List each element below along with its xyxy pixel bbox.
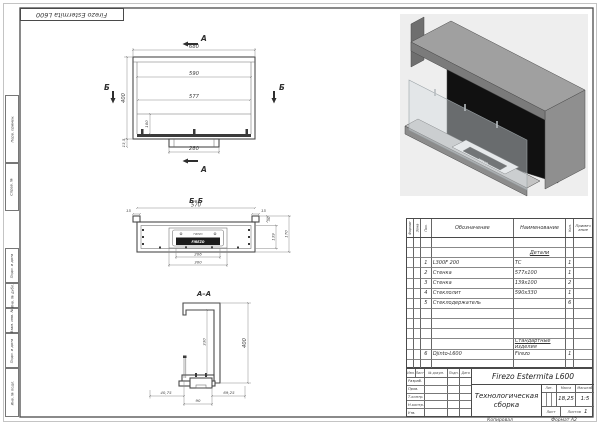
table-row-part-2: 2Стенка577x1001 xyxy=(407,268,592,278)
margin-label: Инв. № подл. xyxy=(10,380,14,405)
doc-type: Технологическая сборка xyxy=(472,385,542,416)
table-row-part-4: 4Стеклолит590x3301 xyxy=(407,289,592,299)
table-row-group-standard: Стандартные изделия xyxy=(407,339,592,349)
format-label: Формат А2 xyxy=(535,418,593,423)
section-mark-b-left: Б xyxy=(104,83,116,104)
col-zone: Зона xyxy=(415,224,419,233)
sheets-value: 1 xyxy=(584,409,588,415)
dim-bb-flange-left: 15 xyxy=(126,208,131,213)
table-row-part-3: 3Стенка139x1002 xyxy=(407,279,592,289)
svg-text:А: А xyxy=(200,165,207,174)
corner-stamp-text: Firezo Estermita L600 xyxy=(36,11,107,19)
margin-cell-perv-primen: Перв. примен. xyxy=(5,95,19,163)
dim-aa-height: 400 xyxy=(242,337,248,348)
burner-brand-small: FIREZO xyxy=(193,232,202,236)
dim-base-height: 13,5 xyxy=(121,138,126,147)
dim-bb-top: 30 xyxy=(266,216,271,221)
group-standard-label: Стандартные изделия xyxy=(514,339,566,349)
dim-bb-inner-depth: 139 xyxy=(271,233,276,241)
col-format: Формат xyxy=(408,221,412,235)
margin-cell-sprav: Справ. № xyxy=(5,163,19,211)
col-note: Примечание xyxy=(574,219,592,237)
table-row-part-5: 5Стеклодержатель6 xyxy=(407,299,592,309)
col-lit: Лит. xyxy=(542,385,557,392)
margin-cell-vzam-inv: Взам. инв. № xyxy=(5,308,19,333)
dim-glass-width: 577 xyxy=(189,94,200,100)
dim-bb-flange-right: 15 xyxy=(261,208,266,213)
dim-aa-burner: 90 xyxy=(196,398,201,403)
margin-label: Перв. примен. xyxy=(10,116,14,143)
svg-text:А: А xyxy=(200,34,207,43)
margin-label: Подп. и дата xyxy=(10,253,14,277)
col-designation: Обозначение xyxy=(432,219,514,237)
dim-burner-zone: 100 xyxy=(144,120,149,128)
table-row xyxy=(407,238,592,248)
sign-utv: Утв. xyxy=(407,409,425,416)
section-mark-b-right: Б xyxy=(272,83,286,104)
hdr-list: Лист xyxy=(416,369,425,377)
isometric-view: FIREZO xyxy=(400,14,588,196)
section-mark-a-top: А xyxy=(183,34,208,47)
sign-razrab: Разраб. xyxy=(407,378,425,385)
dim-base-width: 280 xyxy=(189,146,200,152)
scale-value: 1:5 xyxy=(576,393,594,407)
section-mark-a-bottom: А xyxy=(183,159,208,175)
parts-table-header: Формат Зона Поз. Обозначение Наименовани… xyxy=(407,219,592,238)
section-aa-view: А–А 330 400 40,75 69,25 90 xyxy=(150,290,251,406)
table-row-group-details: Детали xyxy=(407,248,592,258)
sign-nkontr: Н.контр. xyxy=(407,401,425,408)
title-block-signatures: Изм. Лист № докум. Подп. Дата Разраб. Пр… xyxy=(407,369,472,416)
dim-bb-depth: 170 xyxy=(284,230,289,238)
dim-height: 400 xyxy=(121,92,127,103)
margin-label: Справ. № xyxy=(10,178,14,195)
margin-cell-inv-podl: Инв. № подл. xyxy=(5,368,19,417)
parts-table: Формат Зона Поз. Обозначение Наименовани… xyxy=(406,218,593,368)
dim-bb-width: 570 xyxy=(191,203,202,209)
burner-brand: FIREZO xyxy=(191,240,204,244)
dim-aa-opening: 330 xyxy=(202,338,207,346)
margin-label: Подп. и дата xyxy=(10,338,14,362)
front-view: 680 590 577 400 100 280 13,5 А А Б xyxy=(104,34,285,174)
hdr-izm: Изм. xyxy=(407,369,416,377)
group-details-label: Детали xyxy=(514,248,566,258)
corner-stamp: Firezo Estermita L600 xyxy=(20,8,124,21)
mass-value: 18,25 xyxy=(557,393,576,407)
col-pos: Поз. xyxy=(424,224,428,232)
sign-tkontr: Т.контр. xyxy=(407,394,425,401)
table-row xyxy=(407,309,592,319)
dim-bb-burner: 206 xyxy=(194,252,202,257)
sheets-cell: Листов 1 xyxy=(561,407,594,416)
col-qty: Кол. xyxy=(568,224,572,232)
table-row-part-1: 1L300F 200ТС1 xyxy=(407,258,592,268)
hdr-dokum: № докум. xyxy=(425,369,449,377)
sign-prov: Пров. xyxy=(407,386,425,393)
lit-cells xyxy=(542,393,557,407)
burner-plate: FIREZO FIREZO xyxy=(169,228,227,248)
section-aa-title: А–А xyxy=(196,290,211,298)
sheet-label: Лист xyxy=(542,407,561,416)
dim-aa-back: 69,25 xyxy=(223,390,235,395)
hdr-data: Дата xyxy=(460,369,471,377)
hdr-podp: Подп. xyxy=(448,369,460,377)
margin-cell-inv-dubl: Инв. № дубл. xyxy=(5,283,19,308)
margin-label: Инв. № дубл. xyxy=(10,283,14,308)
drawing-title: Firezo Estermita L600 xyxy=(472,369,594,385)
sheets-label: Листов xyxy=(568,410,581,414)
dim-aa-front: 40,75 xyxy=(160,390,172,395)
table-row-part-6: 6Djinto-L600Firezo1 xyxy=(407,350,592,360)
table-row xyxy=(407,329,592,339)
section-bb-view: Б–Б FIREZO FIREZO 570 15 15 30 139 1 xyxy=(126,197,291,267)
svg-text:Б: Б xyxy=(104,83,110,92)
svg-text:Б: Б xyxy=(279,83,285,92)
margin-cell-podp-data-1: Подп. и дата xyxy=(5,248,19,283)
title-block: Изм. Лист № докум. Подп. Дата Разраб. Пр… xyxy=(406,368,593,417)
table-row xyxy=(407,319,592,329)
col-name: Наименование xyxy=(514,219,566,237)
col-mass: Масса xyxy=(557,385,576,392)
margin-cell-podp-data-2: Подп. и дата xyxy=(5,333,19,368)
margin-label: Взам. инв. № xyxy=(10,308,14,332)
dim-inner-width: 590 xyxy=(189,71,200,77)
col-scale: Масштаб xyxy=(576,385,594,392)
dim-bb-tray: 300 xyxy=(194,260,202,265)
